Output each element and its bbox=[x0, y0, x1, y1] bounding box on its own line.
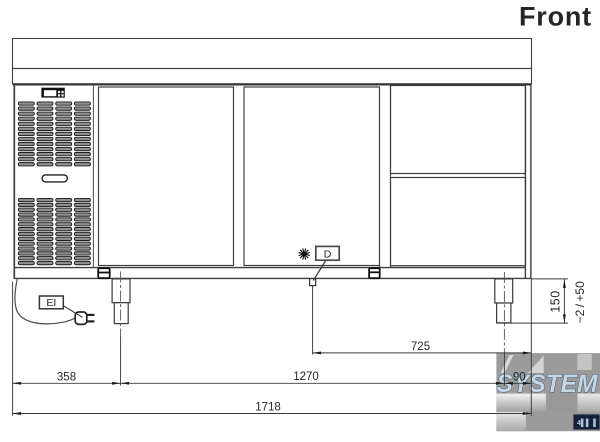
svg-text:90: 90 bbox=[513, 372, 526, 384]
svg-text:EI: EI bbox=[46, 297, 56, 309]
svg-text:D: D bbox=[324, 248, 332, 260]
svg-text:358: 358 bbox=[57, 371, 76, 383]
svg-text:−2 / +50: −2 / +50 bbox=[573, 281, 587, 324]
svg-text:150: 150 bbox=[548, 290, 562, 312]
svg-text:1718: 1718 bbox=[255, 401, 281, 413]
svg-text:1270: 1270 bbox=[293, 371, 319, 383]
svg-text:Front: Front bbox=[519, 2, 592, 32]
svg-text:4▌▌▐: 4▌▌▐ bbox=[577, 418, 596, 428]
svg-text:725: 725 bbox=[411, 341, 430, 353]
